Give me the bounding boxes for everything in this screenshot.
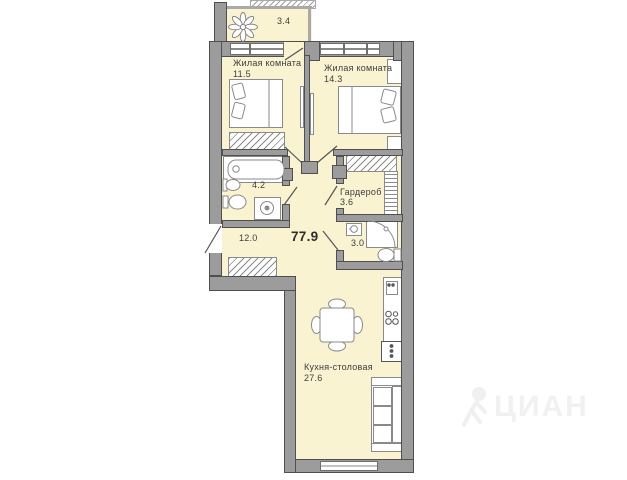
bedroom1-area-label: 11.5 bbox=[233, 69, 251, 79]
wall-central-block bbox=[301, 161, 318, 174]
wall-central bbox=[304, 55, 310, 165]
hallway-area-label: 12.0 bbox=[239, 233, 258, 243]
bedroom2-area-label: 14.3 bbox=[324, 74, 343, 84]
total-area-label: 77.9 bbox=[291, 229, 318, 245]
kitchen-name-label: Кухня-столовая bbox=[304, 362, 373, 372]
balcony-area-label: 3.4 bbox=[277, 16, 290, 26]
watermark-text: ЦИАН bbox=[494, 390, 589, 424]
sofa-seat-2 bbox=[373, 406, 392, 425]
washing-machine bbox=[254, 197, 281, 220]
wardrobe-name-label: Гардероб bbox=[340, 187, 382, 197]
wall-bath-bottom bbox=[222, 220, 290, 228]
wall-kitchen-left bbox=[284, 281, 296, 473]
bedroom2-bed bbox=[338, 86, 401, 134]
window-bedroom2-divider1 bbox=[343, 43, 345, 55]
wall-bath-block bbox=[282, 168, 293, 181]
kitchen-area-label: 27.6 bbox=[304, 373, 323, 383]
bedroom-door-leaf-right bbox=[310, 93, 314, 135]
kitchen-sink-basin bbox=[386, 281, 398, 295]
window-bedroom2 bbox=[320, 43, 380, 55]
wc-sink bbox=[346, 223, 362, 236]
wardrobe-shelf-top bbox=[346, 155, 397, 172]
balcony-wall-top bbox=[221, 6, 312, 9]
fridge bbox=[381, 341, 403, 362]
wall-bedroom1-bottom bbox=[222, 149, 288, 156]
wall-pillar-top-left bbox=[214, 2, 227, 46]
window-kitchen bbox=[320, 461, 378, 471]
window-bedroom1 bbox=[230, 43, 284, 55]
wall-hall-bottom bbox=[209, 276, 296, 291]
bedroom2-name-label: Жилая комната bbox=[324, 63, 392, 73]
wall-wc-bottom bbox=[336, 261, 403, 270]
wardrobe-shelf-right bbox=[384, 171, 398, 216]
shower-cabin bbox=[366, 219, 398, 248]
sofa-seat-1 bbox=[373, 387, 392, 406]
window-bedroom2-divider2 bbox=[366, 43, 368, 55]
sofa-seat-3 bbox=[373, 425, 392, 443]
bathroom-area-label: 4.2 bbox=[252, 180, 265, 190]
wall-wardrobe-bottom bbox=[336, 214, 403, 222]
wall-wardrobe-block bbox=[332, 165, 347, 179]
entrance-door-opening bbox=[209, 224, 222, 253]
person-icon bbox=[464, 389, 485, 425]
bathtub bbox=[223, 156, 289, 183]
bedroom1-name-label: Жилая комната bbox=[233, 58, 301, 68]
balcony-door-opening bbox=[284, 42, 304, 57]
bedroom1-bed bbox=[229, 79, 283, 128]
wc-area-label: 3.0 bbox=[351, 238, 364, 248]
wall-bedroom2-bottom bbox=[333, 149, 403, 156]
wardrobe-area-label: 3.6 bbox=[340, 197, 353, 207]
sofa-armrest-top bbox=[371, 377, 402, 386]
floor-plan: ЦИАН bbox=[0, 0, 627, 480]
sofa-armrest-bottom bbox=[371, 443, 402, 452]
wall-right bbox=[401, 41, 414, 472]
window-bedroom1-divider bbox=[249, 43, 251, 55]
